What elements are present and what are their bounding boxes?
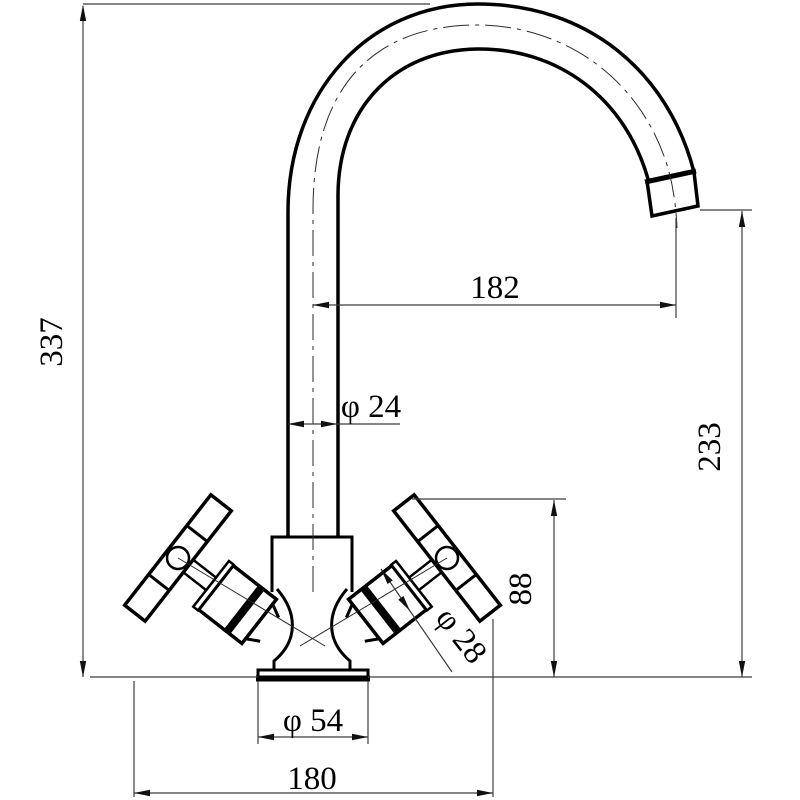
label-spout-height: 233 [692, 422, 728, 472]
arrow-54-right [352, 734, 368, 740]
arrow-24-left [288, 421, 304, 427]
arrow-88-up [551, 500, 557, 516]
dimension-lines [80, 4, 752, 797]
spout-centerline [313, 25, 677, 592]
label-overall-height: 337 [34, 317, 70, 367]
label-pipe-diameter: φ 24 [341, 389, 401, 425]
arrow-88-down [551, 661, 557, 677]
arrow-337-up [80, 5, 86, 21]
valve-body-block [272, 537, 352, 592]
arrow-180-right [477, 790, 493, 796]
arrow-233-down [739, 661, 745, 677]
dimension-labels: 337 182 φ 24 233 88 φ 28 φ 54 180 [34, 270, 728, 797]
arrow-182-left [313, 302, 329, 308]
arrow-180-left [134, 790, 150, 796]
label-overall-width: 180 [287, 761, 337, 797]
arrow-24-right [321, 421, 337, 427]
arrow-233-up [739, 211, 745, 227]
left-handle [125, 495, 313, 685]
arrow-337-down [80, 661, 86, 677]
arrow-54-left [258, 734, 274, 740]
label-spout-reach: 182 [470, 270, 520, 306]
drawing-canvas: 337 182 φ 24 233 88 φ 28 φ 54 180 [0, 0, 800, 800]
body-flank-right [332, 589, 350, 671]
label-handle-height: 88 [503, 573, 539, 606]
label-base-diameter: φ 54 [283, 703, 343, 739]
arrow-182-right [660, 302, 676, 308]
faucet-technical-drawing: 337 182 φ 24 233 88 φ 28 φ 54 180 [0, 0, 800, 800]
